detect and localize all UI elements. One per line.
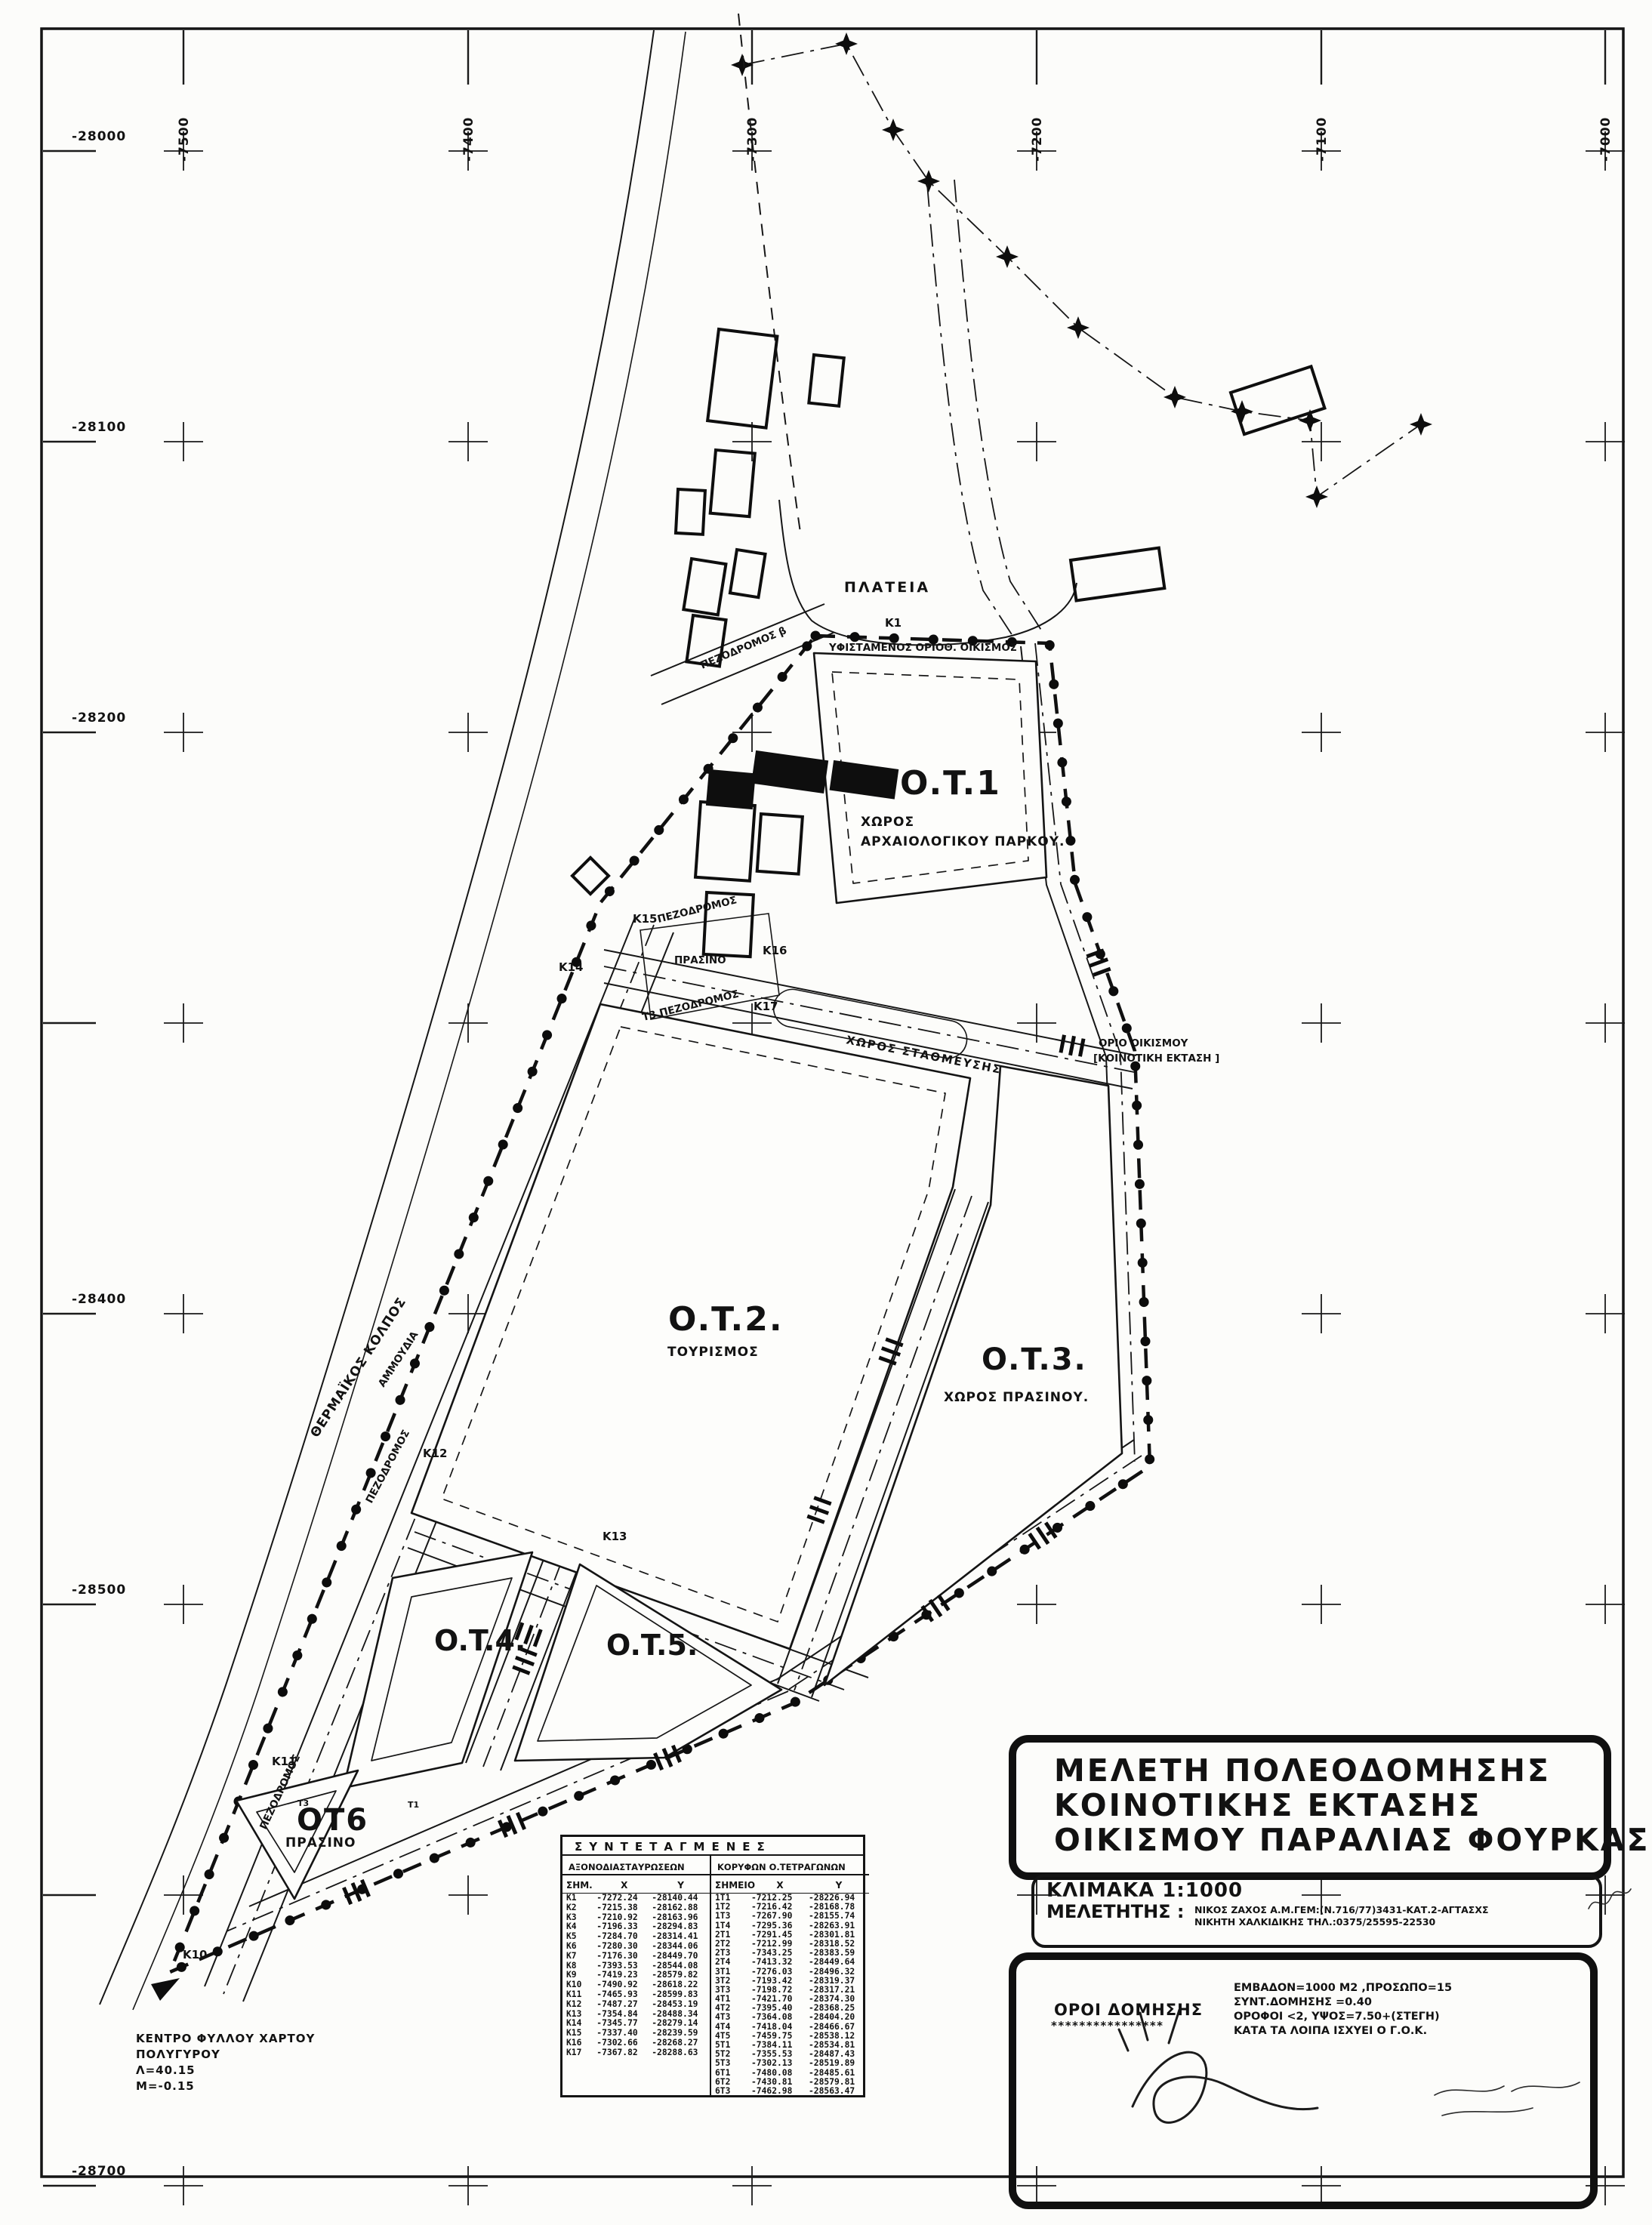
point-y: -28453.19 [652, 2000, 710, 2010]
point-x: -7295.36 [751, 1921, 809, 1931]
table-row: 6Τ3 -7462.98 -28563.47 [711, 2087, 869, 2096]
point-x: -7487.27 [596, 2000, 652, 2010]
terms-line: ΟΡΟΦΟΙ <2, ΥΨΟΣ=7.50+(ΣΤΕΓΗ) [1234, 2010, 1452, 2024]
label-ot1-use-1: ΧΩΡΟΣ [861, 815, 914, 830]
point-y: -28162.88 [652, 1903, 710, 1913]
coordinates-table-title: ΣΥΝΤΕΤΑΓΜΕΝΕΣ [562, 1837, 863, 1856]
point-x: -7364.08 [751, 2013, 809, 2022]
point-k10: Κ10 [183, 1948, 208, 1962]
table-row: Κ2 -7215.38 -28162.88 [562, 1903, 710, 1913]
note-line: Μ=-0.15 [136, 2079, 315, 2094]
label-existing-boundary: ΥΦΙΣΤΑΜΕΝΟΣ ΟΡΙΟΘ. ΟΙΚΙΣΜΟΣ [828, 642, 1017, 654]
left-column-headers: ΣΗΜ. Χ Υ [562, 1875, 710, 1894]
table-row: 2Τ4 -7413.32 -28449.64 [711, 1958, 869, 1967]
scale-block: ΚΛΙΜΑΚΑ 1:1000 ΜΕΛΕΤΗΤΗΣ : ΝΙΚΟΣ ΖΑΧΟΣ Α… [1031, 1874, 1602, 1948]
label-prasino-mid: ΠΡΑΣΙΝΟ [674, 954, 726, 966]
scale-label: ΚΛΙΜΑΚΑ 1:1000 [1046, 1880, 1592, 1901]
point-k14: Κ14 [559, 960, 584, 974]
col-sim: ΣΗΜ. [562, 1880, 596, 1893]
point-y: -28496.32 [809, 1968, 869, 1977]
point-y: -28404.20 [809, 2013, 869, 2022]
point-x: -7367.82 [596, 2048, 652, 2058]
building-terms-block: ΟΡΟΙ ΔΟΜΗΣΗΣ **************** ΕΜΒΑΔΟΝ=10… [1009, 1952, 1598, 2209]
label-ot6-use: ΠΡΑΣΙΝΟ [285, 1835, 356, 1851]
point-id: 1Τ4 [711, 1921, 751, 1931]
terms-lines: ΕΜΒΑΔΟΝ=1000 Μ2 ,ΠΡΟΣΩΠΟ=15 ΣΥΝΤ.ΔΟΜΗΣΗΣ… [1234, 1981, 1452, 2039]
axis-intersections-column: ΑΞΟΝΟΔΙΑΣΤΑΥΡΩΣΕΩΝ ΣΗΜ. Χ Υ Κ1 -7272.24 … [562, 1856, 711, 2095]
label-ot2: O.T.2. [668, 1300, 784, 1339]
point-id: 4Τ3 [711, 2013, 751, 2022]
table-row: 3Τ1 -7276.03 -28496.32 [711, 1968, 869, 1977]
label-pez-beta: ΠΕΖΟΔΡΟΜΟΣ β [698, 624, 788, 672]
note-line: ΠΟΛΥΓΥΡΟΥ [136, 2047, 315, 2063]
note-line: Λ=40.15 [136, 2063, 315, 2079]
coordinates-table: ΣΥΝΤΕΤΑΓΜΕΝΕΣ ΑΞΟΝΟΔΙΑΣΤΑΥΡΩΣΕΩΝ ΣΗΜ. Χ … [560, 1835, 865, 2097]
point-id: 2Τ4 [711, 1958, 751, 1967]
scanned-plan-sheet: -7500-7400-7300-7200-7100-7000-28000-281… [0, 0, 1652, 2225]
point-id: Κ16 [562, 2039, 596, 2048]
old-boundary-dashed [738, 14, 800, 532]
label-ot5: O.T.5. [606, 1629, 698, 1662]
point-id: 3Τ1 [711, 1968, 751, 1977]
terms-line: ΣΥΝΤ.ΔΟΜΗΣΗΣ =0.40 [1234, 1995, 1452, 2010]
table-row: 1Τ4 -7295.36 -28263.91 [711, 1921, 869, 1931]
point-t1: Τ1 [408, 1800, 419, 1810]
point-y: -28263.91 [809, 1921, 869, 1931]
table-row: Κ11 -7465.93 -28599.83 [562, 1990, 710, 2000]
point-y: -28288.63 [652, 2048, 710, 2058]
point-x: -7302.13 [751, 2059, 809, 2068]
point-y: -28155.74 [809, 1912, 869, 1921]
grid-label-top: -7500 [177, 117, 192, 162]
point-k12: Κ12 [423, 1447, 448, 1460]
point-x: -7480.08 [751, 2069, 809, 2078]
grid-label-left: -28700 [72, 2164, 126, 2179]
grid-label-left: -28200 [72, 710, 126, 726]
right-table-header: ΚΟΡΥΦΩΝ Ο.ΤΕΤΡΑΓΩΝΩΝ [711, 1856, 869, 1875]
grid-label-left: -28000 [72, 129, 126, 144]
terms-underline: **************** [1051, 2019, 1164, 2032]
grid-label-left: -28100 [72, 420, 126, 435]
point-y: -28519.89 [809, 2059, 869, 2068]
label-plateia: ΠΛΑΤΕΙΑ [844, 579, 930, 596]
point-id: 6Τ3 [711, 2087, 751, 2096]
label-ot1: O.T.1 [900, 764, 1001, 803]
consultant-label: ΜΕΛΕΤΗΤΗΣ : [1046, 1901, 1194, 1922]
sheet-center-note: ΚΕΝΤΡΟ ΦΥΛΛΟΥ ΧΑΡΤΟΥ ΠΟΛΥΓΥΡΟΥ Λ=40.15 Μ… [136, 2031, 315, 2094]
label-ot2-use: ΤΟΥΡΙΣΜΟΣ [667, 1345, 759, 1360]
grid-label-top: -7400 [461, 117, 476, 162]
point-x: -7302.66 [596, 2039, 652, 2048]
consultant-details: ΝΙΚΟΣ ΖΑΧΟΣ Α.Μ.ΓΕΜ:(Ν.716/77)3431-ΚΑΤ.2… [1194, 1901, 1489, 1928]
label-orio-1: ΟΡΙΟ ΟΙΚΙΣΜΟΥ [1099, 1037, 1188, 1049]
grid-label-top: -7200 [1030, 117, 1045, 162]
point-id: 1Τ3 [711, 1912, 751, 1921]
point-x: -7267.90 [751, 1912, 809, 1921]
table-row: Κ12 -7487.27 -28453.19 [562, 2000, 710, 2010]
point-id: Κ2 [562, 1903, 596, 1913]
grid-label-left: -28500 [72, 1582, 126, 1598]
label-pez-3: ΠΕΖΟΔΡΟΜΟΣ [656, 894, 738, 926]
point-t3: Τ3 [297, 1798, 309, 1808]
label-ot3-use: ΧΩΡΟΣ ΠΡΑΣΙΝΟΥ. [944, 1390, 1089, 1405]
grid-label-top: -7100 [1315, 117, 1330, 162]
point-x: -7462.98 [751, 2087, 809, 2096]
point-x: -7280.30 [596, 1942, 652, 1952]
point-x: -7465.93 [596, 1990, 652, 2000]
point-y: -28485.61 [809, 2069, 869, 2078]
point-y: -28466.67 [809, 2023, 869, 2032]
point-k16: Κ16 [763, 944, 787, 957]
left-table-header: ΑΞΟΝΟΔΙΑΣΤΑΥΡΩΣΕΩΝ [562, 1856, 710, 1875]
label-orio-2: [ΚΟΙΝΟΤΙΚΗ ΕΚΤΑΣΗ ] [1093, 1052, 1219, 1065]
col-x: Χ [751, 1880, 809, 1893]
survey-star-markers [731, 32, 1432, 508]
point-y: -28449.70 [652, 1952, 710, 1962]
consultant-line-2: ΝΙΚΗΤΗ ΧΑΛΚΙΔΙΚΗΣ ΤΗΛ.:0375/25595-22530 [1194, 1916, 1489, 1928]
point-k11: Κ11 [272, 1755, 297, 1768]
point-id: Κ12 [562, 2000, 596, 2010]
point-id: Κ17 [562, 2048, 596, 2058]
table-row: Κ1 -7272.24 -28140.44 [562, 1894, 710, 1903]
table-row: Κ7 -7176.30 -28449.70 [562, 1952, 710, 1962]
point-y: -28449.64 [809, 1958, 869, 1967]
terms-label: ΟΡΟΙ ΔΟΜΗΣΗΣ [1054, 2001, 1203, 2019]
point-x: -7176.30 [596, 1952, 652, 1962]
point-k1: Κ1 [885, 616, 902, 630]
point-id: Κ7 [562, 1952, 596, 1962]
point-y: -28268.27 [652, 2039, 710, 2048]
col-x: Χ [596, 1880, 652, 1893]
table-row: 6Τ1 -7480.08 -28485.61 [711, 2069, 869, 2078]
table-row: 1Τ3 -7267.90 -28155.74 [711, 1912, 869, 1921]
point-id: Κ1 [562, 1894, 596, 1903]
table-row: Κ16 -7302.66 -28268.27 [562, 2039, 710, 2048]
point-x: -7276.03 [751, 1968, 809, 1977]
point-id: Κ6 [562, 1942, 596, 1952]
point-x: -7272.24 [596, 1894, 652, 1903]
point-y: -28140.44 [652, 1894, 710, 1903]
plateia-outline [779, 500, 1077, 645]
point-x: -7215.38 [596, 1903, 652, 1913]
right-column-headers: ΣΗΜΕΙΟ Χ Υ [711, 1875, 869, 1894]
terms-line: ΚΑΤΑ ΤΑ ΛΟΙΠΑ ΙΣΧΥΕΙ Ο Γ.Ο.Κ. [1234, 2024, 1452, 2039]
point-y: -28344.06 [652, 1942, 710, 1952]
note-line: ΚΕΝΤΡΟ ΦΥΛΛΟΥ ΧΑΡΤΟΥ [136, 2031, 315, 2047]
point-k17: Κ17 [754, 1000, 778, 1013]
point-x: -7413.32 [751, 1958, 809, 1967]
table-row: 5Τ3 -7302.13 -28519.89 [711, 2059, 869, 2068]
point-y: -28599.83 [652, 1990, 710, 2000]
col-y: Υ [809, 1880, 869, 1893]
terms-line: ΕΜΒΑΔΟΝ=1000 Μ2 ,ΠΡΟΣΩΠΟ=15 [1234, 1981, 1452, 1995]
grid-label-left: -28400 [72, 1292, 126, 1307]
label-ot3: O.T.3. [982, 1342, 1087, 1377]
table-row: Κ6 -7280.30 -28344.06 [562, 1942, 710, 1952]
point-id: 6Τ1 [711, 2069, 751, 2078]
point-id: Κ11 [562, 1990, 596, 2000]
block-ot4 [344, 1552, 532, 1788]
title-line-3: ΟΙΚΙΣΜΟΥ ΠΑΡΑΛΙΑΣ ΦΟΥΡΚΑΣ [1054, 1823, 1604, 1857]
overhead-line [742, 44, 1421, 497]
pez-beta-edge-a [651, 604, 824, 676]
table-row: Κ17 -7367.82 -28288.63 [562, 2048, 710, 2058]
point-k13: Κ13 [603, 1530, 627, 1543]
col-y: Υ [652, 1880, 710, 1893]
grid-label-top: -7300 [745, 117, 760, 162]
col-simeio: ΣΗΜΕΙΟ [711, 1880, 751, 1893]
label-ot4: O.T.4. [434, 1624, 525, 1657]
apex-arrow-marker [151, 1978, 180, 2001]
consultant-line-1: ΝΙΚΟΣ ΖΑΧΟΣ Α.Μ.ΓΕΜ:(Ν.716/77)3431-ΚΑΤ.2… [1194, 1904, 1489, 1916]
point-x: -7418.04 [751, 2023, 809, 2032]
table-row: 4Τ3 -7364.08 -28404.20 [711, 2013, 869, 2022]
table-row: 4Τ4 -7418.04 -28466.67 [711, 2023, 869, 2032]
point-y: -28563.47 [809, 2087, 869, 2096]
block-vertices-column: ΚΟΡΥΦΩΝ Ο.ΤΕΤΡΑΓΩΝΩΝ ΣΗΜΕΙΟ Χ Υ 1Τ1 -721… [711, 1856, 869, 2095]
title-line-1: ΜΕΛΕΤΗ ΠΟΛΕΟΔΟΜΗΣΗΣ [1054, 1753, 1604, 1788]
point-id: 4Τ4 [711, 2023, 751, 2032]
point-k15: Κ15 [633, 912, 658, 926]
point-id: 5Τ3 [711, 2059, 751, 2068]
title-block: ΜΕΛΕΤΗ ΠΟΛΕΟΔΟΜΗΣΗΣ ΚΟΙΝΟΤΙΚΗΣ ΕΚΤΑΣΗΣ Ο… [1009, 1735, 1611, 1880]
grid-label-top: -7000 [1598, 117, 1613, 162]
title-line-2: ΚΟΙΝΟΤΙΚΗΣ ΕΚΤΑΣΗΣ [1054, 1788, 1604, 1823]
label-ot1-use-2: ΑΡΧΑΙΟΛΟΓΙΚΟΥ ΠΑΡΚΟΥ. [861, 834, 1065, 849]
